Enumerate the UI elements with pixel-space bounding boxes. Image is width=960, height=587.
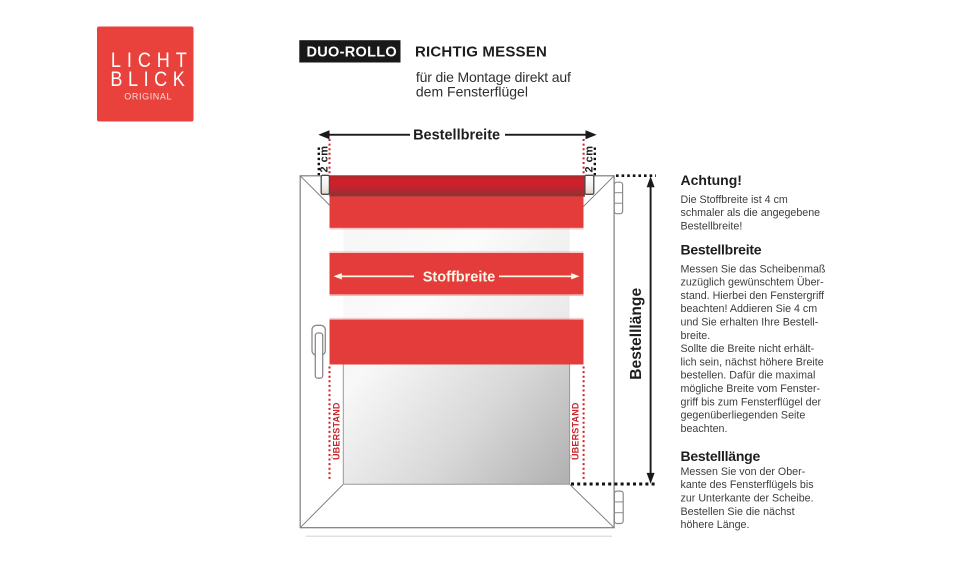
svg-text:Bestellbreite: Bestellbreite [681,242,762,258]
svg-text:und Sie erhalten Ihre Bestell-: und Sie erhalten Ihre Bestell- [681,317,819,329]
svg-text:Messen Sie von der Ober-: Messen Sie von der Ober- [681,466,806,478]
svg-text:Bestelllänge: Bestelllänge [628,288,645,380]
svg-text:bestellen. Dafür die maximal: bestellen. Dafür die maximal [681,370,816,382]
svg-text:ÜBERSTAND: ÜBERSTAND [571,402,581,460]
svg-text:Bestellen Sie die nächst: Bestellen Sie die nächst [681,506,795,518]
svg-text:BLICK: BLICK [110,68,190,92]
svg-text:Sollte die Breite nicht erhält: Sollte die Breite nicht erhält- [681,343,815,355]
svg-text:schmaler als die angegebene: schmaler als die angegebene [681,207,821,219]
svg-text:zur Unterkante der Scheibe.: zur Unterkante der Scheibe. [681,493,814,505]
svg-text:Die Stoffbreite ist 4 cm: Die Stoffbreite ist 4 cm [681,194,788,206]
svg-text:griff bis zum Fensterflügel de: griff bis zum Fensterflügel der [681,396,822,408]
svg-text:Bestelllänge: Bestelllänge [681,448,761,464]
svg-text:beachten! Addieren Sie 4 cm: beachten! Addieren Sie 4 cm [681,303,818,315]
svg-text:dem Fensterflügel: dem Fensterflügel [416,84,528,100]
svg-text:Bestellbreite: Bestellbreite [413,128,500,144]
svg-text:Messen Sie das Scheibenmaß: Messen Sie das Scheibenmaß [681,263,826,275]
svg-text:Bestellbreite!: Bestellbreite! [681,220,743,232]
svg-text:kante des Fensterflügels bis: kante des Fensterflügels bis [681,479,814,491]
svg-text:beachten.: beachten. [681,423,728,435]
svg-text:stand. Hierbei den Fenstergrif: stand. Hierbei den Fenstergriff [681,290,825,302]
svg-text:höhere Länge.: höhere Länge. [681,519,750,531]
svg-text:Stoffbreite: Stoffbreite [423,269,496,285]
svg-text:RICHTIG MESSEN: RICHTIG MESSEN [415,43,547,60]
svg-text:Achtung!: Achtung! [681,172,742,188]
svg-text:für die Montage direkt auf: für die Montage direkt auf [416,69,571,85]
svg-text:lich sein, nächst höhere Breit: lich sein, nächst höhere Breite [681,356,824,368]
svg-text:DUO-ROLLO: DUO-ROLLO [307,45,398,61]
svg-text:gegenüberliegenden Seite: gegenüberliegenden Seite [681,410,806,422]
svg-text:zuzüglich gewünschtem Über-: zuzüglich gewünschtem Über- [681,277,825,289]
svg-text:mögliche Breite vom Fenster-: mögliche Breite vom Fenster- [681,383,821,395]
svg-text:ORIGINAL: ORIGINAL [124,92,172,102]
svg-text:ÜBERSTAND: ÜBERSTAND [332,402,342,460]
svg-text:breite.: breite. [681,330,711,342]
